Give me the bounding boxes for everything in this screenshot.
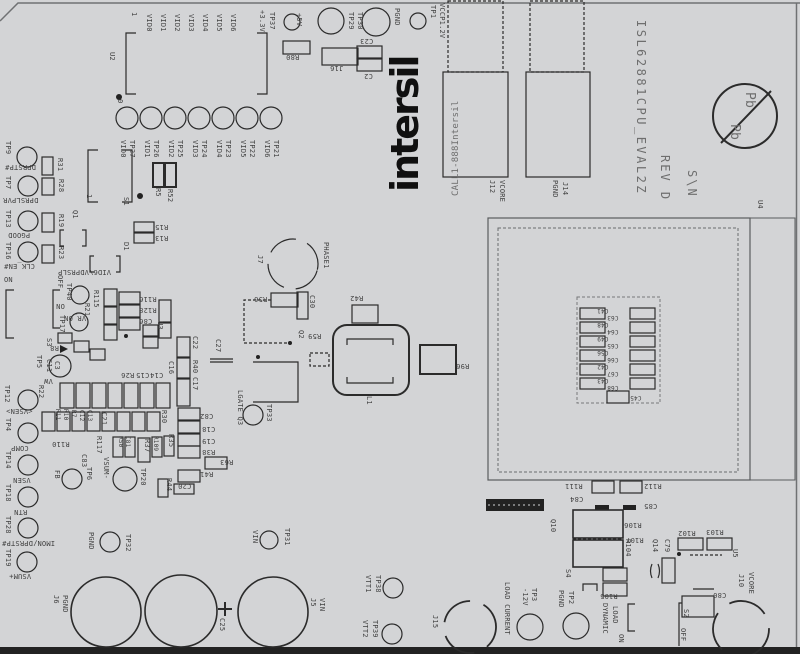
silkscreen-label: C25 (218, 618, 225, 631)
silkscreen-label: C45 (630, 394, 641, 400)
silkscreen-label: C49 (597, 335, 608, 341)
silkscreen-label: C66 (607, 356, 618, 362)
silkscreen-label: C3 (53, 361, 60, 370)
silkscreen-label: R5 (154, 188, 161, 197)
silkscreen-label: DPRSTP# (5, 163, 36, 170)
silkscreen-label: TP22 (248, 140, 255, 158)
silkscreen-label: TP32 (124, 534, 131, 552)
silkscreen-label: TP18 (4, 484, 11, 502)
silkscreen-label: VID0 (119, 140, 126, 158)
silkscreen-label: +3.3V (258, 10, 265, 32)
silkscreen-label: C67 (607, 370, 618, 376)
silkscreen-label: TP23 (224, 140, 231, 158)
silkscreen-label: C17 (191, 377, 198, 390)
silkscreen-label: VID4 (201, 14, 208, 32)
silkscreen-label: C11 (45, 359, 52, 372)
silkscreen-label: R11 (54, 409, 60, 420)
silkscreen-label: C63 (607, 314, 618, 320)
silkscreen-label: R26 (121, 371, 134, 378)
silkscreen-label: OFF (56, 275, 63, 288)
silkscreen-label: R28 (57, 179, 64, 192)
silkscreen-label: R22 (37, 385, 44, 398)
silkscreen-label: D1 (122, 242, 129, 251)
silkscreen-label: C84 (570, 495, 583, 502)
silkscreen-label: J16 (330, 64, 343, 71)
silkscreen-label: C48 (597, 321, 608, 327)
silkscreen-label: R13 (155, 234, 168, 241)
silkscreen-label: VTT1 (364, 575, 371, 593)
silkscreen-label: IMON/DPRSTP# (2, 539, 55, 546)
silkscreen-label: R42 (350, 294, 363, 301)
silkscreen-label: C79 (663, 539, 670, 552)
silkscreen-label: U5 (731, 549, 738, 558)
silkscreen-label: R52 (166, 189, 173, 202)
silkscreen-label: R96 (456, 362, 469, 369)
silkscreen-label: R104 (624, 539, 631, 557)
silkscreen-label: -12V (521, 588, 528, 606)
silkscreen-label: TP13 (4, 210, 11, 228)
silkscreen-label: S\N (686, 170, 698, 198)
silkscreen-label: ISL62881CPU_EVAL2Z (635, 20, 647, 195)
silkscreen-label: TP28 (4, 516, 11, 534)
silkscreen-label: J10 (737, 574, 744, 587)
silkscreen-label: C82 (200, 412, 213, 419)
silkscreen-label: VID5 (215, 14, 222, 32)
silkscreen-label: OFF (679, 628, 686, 641)
silkscreen-label: TP33 (265, 404, 272, 422)
silkscreen-label: R40 (191, 360, 198, 373)
silkscreen-label: VID4 (215, 140, 222, 158)
silkscreen-label: R128 (139, 306, 157, 313)
silkscreen-label: VID6 (229, 14, 236, 32)
silkscreen-label: PGND (87, 532, 94, 550)
silkscreen-label: R37 (143, 439, 150, 452)
silkscreen-label: TP9 (4, 141, 11, 154)
silkscreen-label: CALL1-888Intersil (452, 100, 461, 196)
silkscreen-label: C68 (607, 384, 618, 390)
silkscreen-label: VID6 (263, 140, 270, 158)
silkscreen-label: R56 (254, 295, 267, 302)
silkscreen-label: TP7 (4, 176, 11, 189)
silkscreen-label: VCORE (498, 180, 505, 202)
silkscreen-label: J7 (256, 255, 263, 264)
silkscreen-label: C41 (597, 307, 608, 313)
silkscreen-label: R115 (92, 290, 99, 308)
silkscreen-label: R63 (220, 458, 233, 465)
silkscreen-label: VID2 (173, 14, 180, 32)
silkscreen-label: PHASE1 (322, 242, 329, 269)
silkscreen-label: R31 (56, 158, 63, 171)
silkscreen-label: R23 (57, 246, 64, 259)
silkscreen-label: TP3 (530, 588, 537, 601)
silkscreen-label: C12 (78, 410, 84, 421)
silkscreen-label: Q10 (549, 519, 556, 532)
silkscreen-label: 1 (130, 12, 137, 16)
silkscreen-label: RTN (14, 508, 27, 515)
silkscreen-label: C80 (713, 591, 726, 598)
silkscreen-label: TP26 (152, 140, 159, 158)
silkscreen-label: TP14 (4, 451, 11, 469)
silkscreen-label: C81 (124, 436, 130, 447)
silkscreen-label: C15 (136, 371, 149, 378)
silkscreen-label: R103 (706, 528, 724, 535)
silkscreen-label: Q14 (651, 539, 658, 552)
silkscreen-label: R109 (152, 436, 158, 451)
silkscreen-label: U2 (108, 52, 115, 61)
silkscreen-label: VID1 (143, 140, 150, 158)
silkscreen-label: R38 (202, 448, 215, 455)
silkscreen-label: R105 (600, 592, 618, 599)
silkscreen-label: S4 (564, 569, 571, 578)
silkscreen-label: TP39 (371, 620, 378, 638)
silkscreen-label: R110 (52, 440, 70, 447)
silkscreen-label: C21 (100, 412, 107, 425)
silkscreen-label: ON (4, 277, 13, 284)
silkscreen-label: S2 (682, 609, 689, 618)
silkscreen-label: PGOOD (8, 231, 30, 238)
silkscreen-label: Pb (728, 124, 741, 140)
silkscreen-label: U4 (756, 200, 763, 209)
silkscreen-label: Q1 (71, 210, 78, 219)
silkscreen-label: VID3 (191, 140, 198, 158)
silkscreen-label: TP40 (65, 283, 72, 301)
silkscreen-label: VIN (318, 598, 325, 611)
silkscreen-label: Q2 (297, 330, 304, 339)
silkscreen-label: DYNAMIC (601, 603, 608, 634)
silkscreen-label: TP30 (356, 12, 363, 30)
silkscreen-label: R44 (165, 478, 172, 491)
silkscreen-label: C14 (150, 371, 163, 378)
silkscreen-label: C18 (202, 425, 215, 432)
silkscreen-label: J5 (309, 598, 316, 607)
silkscreen-label: REV D (659, 155, 671, 201)
silkscreen-label: C86 (139, 317, 152, 324)
pcb-board: 1VID0VID1VID2VID3VID4VID5VID6+3.3VTP37U2… (0, 0, 800, 654)
silkscreen-label: 0 (116, 99, 123, 103)
silkscreen-label: TP12 (3, 385, 10, 403)
silkscreen-label: C22 (191, 336, 198, 349)
silkscreen-label: R117 (95, 436, 102, 454)
silkscreen-label: intersil (386, 57, 424, 192)
silkscreen-label: COMP (11, 444, 29, 451)
silkscreen-label: ON (617, 634, 624, 643)
silkscreen-label: C43 (597, 377, 608, 383)
silkscreen-label: J14 (561, 182, 568, 195)
silkscreen-label: S1 (122, 197, 129, 206)
silkscreen-label: PGND (557, 590, 564, 608)
silkscreen-label: LGATE Q3 (236, 390, 243, 425)
silkscreen-label: 1 (85, 194, 92, 198)
silkscreen-label: TP24 (200, 140, 207, 158)
silkscreen-label: PGND (393, 8, 400, 26)
silkscreen-label: VW (44, 377, 53, 384)
silkscreen-label: LOAD (611, 606, 618, 624)
silkscreen-label: C16 (167, 361, 174, 374)
silkscreen-label: TP5 (35, 355, 42, 368)
silkscreen-label: C27 (214, 339, 221, 352)
silkscreen-label: C64 (607, 328, 618, 334)
silkscreen-label: TP4 (4, 418, 11, 431)
silkscreen-label: C56 (597, 349, 608, 355)
silkscreen-label: C13 (86, 410, 92, 421)
silkscreen-label: VID3 (187, 14, 194, 32)
silkscreen-labels-layer: 1VID0VID1VID2VID3VID4VID5VID6+3.3VTP37U2… (0, 0, 800, 654)
silkscreen-label: R59 (308, 332, 321, 339)
silkscreen-label: R41 (200, 470, 213, 477)
silkscreen-label: VTT2 (361, 620, 368, 638)
silkscreen-label: R102 (678, 529, 696, 536)
silkscreen-label: TP16 (4, 242, 11, 260)
silkscreen-label: VID5 (239, 140, 246, 158)
silkscreen-label: PGND (61, 595, 68, 613)
silkscreen-label: R111 (565, 482, 583, 489)
silkscreen-label: TP21 (272, 140, 279, 158)
silkscreen-label: TP25 (176, 140, 183, 158)
silkscreen-label: C20 (178, 482, 191, 489)
silkscreen-label: CLK_EN# (4, 262, 35, 269)
silkscreen-label: DPRSLPVR (3, 196, 38, 203)
silkscreen-label: VID1 (159, 14, 166, 32)
silkscreen-label: R80 (286, 53, 299, 60)
silkscreen-label: C85 (644, 502, 657, 509)
silkscreen-label: C30 (308, 295, 315, 308)
silkscreen-label: TP29 (347, 12, 354, 30)
silkscreen-label: ON (56, 302, 65, 309)
silkscreen-label: TP27 (128, 140, 135, 158)
silkscreen-label: J15 (431, 615, 438, 628)
silkscreen-label: J6 (52, 595, 59, 604)
silkscreen-label: C23 (360, 37, 373, 44)
silkscreen-label: L1 (365, 396, 372, 405)
silkscreen-label: R116 (139, 295, 157, 302)
silkscreen-label: VIN (251, 530, 258, 543)
silkscreen-label: Pb (743, 92, 756, 108)
silkscreen-label: R35 (167, 434, 174, 447)
silkscreen-label: TP19 (4, 549, 11, 567)
silkscreen-label: TP20 (139, 468, 146, 486)
silkscreen-label: PGND (551, 180, 558, 198)
silkscreen-label: U3 (156, 321, 163, 330)
silkscreen-label: R19 (57, 214, 64, 227)
silkscreen-label: C65 (607, 342, 618, 348)
silkscreen-label: VSEN (13, 476, 31, 483)
silkscreen-label: TP1 (429, 5, 436, 18)
silkscreen-label: R30 (160, 410, 167, 423)
silkscreen-label: VSUM- (102, 457, 109, 479)
silkscreen-label: R50 (117, 436, 123, 447)
silkscreen-label: FB (53, 470, 60, 479)
silkscreen-label: R112 (644, 482, 662, 489)
silkscreen-label: VCORE (747, 572, 754, 594)
silkscreen-label: TP2 (567, 591, 574, 604)
silkscreen-label: LOAD CURRENT (503, 582, 510, 635)
silkscreen-label: C19 (202, 437, 215, 444)
silkscreen-label: VSUM+ (9, 572, 31, 579)
silkscreen-label: C42 (597, 363, 608, 369)
silkscreen-label: VID2 (167, 140, 174, 158)
silkscreen-label: VID0 (145, 14, 152, 32)
silkscreen-label: J12 (488, 180, 495, 193)
silkscreen-label: R10 (62, 409, 68, 420)
silkscreen-label: R106 (624, 521, 642, 528)
silkscreen-label: VCCP1.2V (438, 3, 445, 38)
silkscreen-label: R21 (83, 303, 90, 316)
silkscreen-label: TP31 (283, 528, 290, 546)
silkscreen-label: +5V (295, 13, 302, 26)
silkscreen-label: TP6 (85, 467, 92, 480)
silkscreen-label: C2 (364, 72, 373, 79)
silkscreen-label: <VSEN> (6, 407, 33, 414)
silkscreen-label: VID6\VDPRSLP (58, 268, 111, 275)
silkscreen-label: C83 (80, 454, 87, 467)
silkscreen-label: TP38 (374, 575, 381, 593)
silkscreen-label: R15 (155, 223, 168, 230)
silkscreen-label: R7 (70, 410, 76, 418)
silkscreen-label: R8 (50, 344, 59, 351)
silkscreen-label: TP37 (268, 12, 275, 30)
